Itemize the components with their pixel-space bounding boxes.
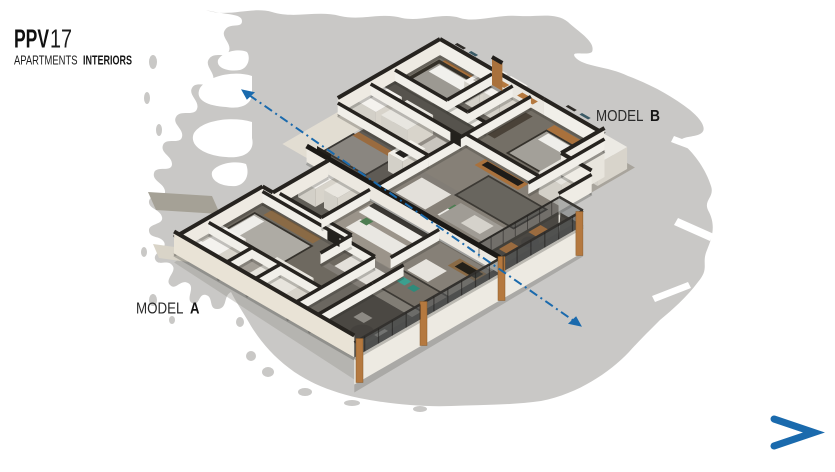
svg-text:MODEL: MODEL (136, 301, 184, 318)
svg-text:A: A (190, 301, 200, 318)
svg-text:PPV: PPV (14, 24, 49, 54)
svg-text:B: B (650, 108, 660, 125)
svg-text:MODEL: MODEL (596, 108, 644, 125)
svg-text:17: 17 (50, 24, 72, 54)
svg-text:INTERIORS: INTERIORS (83, 54, 132, 68)
svg-text:APARTMENTS: APARTMENTS (14, 54, 78, 68)
